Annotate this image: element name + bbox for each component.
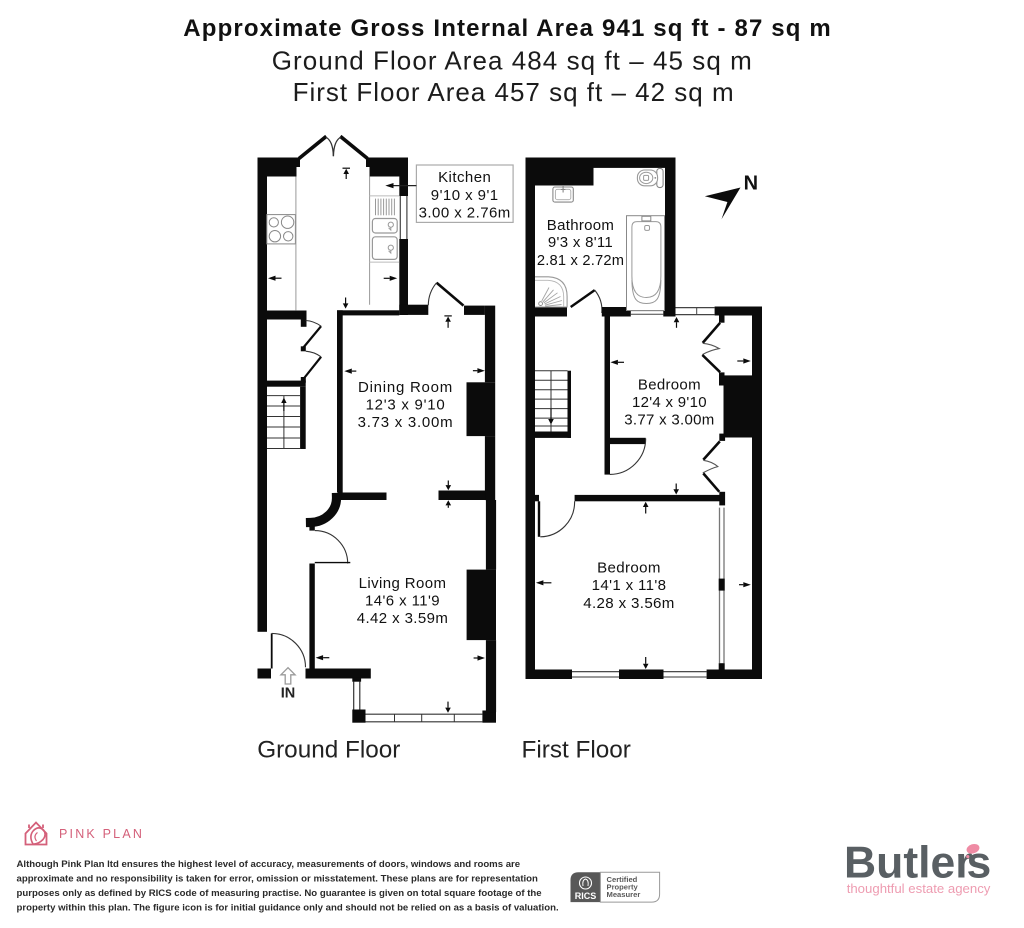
svg-text:First Floor Area 457 sq ft – 4: First Floor Area 457 sq ft – 42 sq m	[293, 77, 735, 107]
svg-text:Living Room: Living Room	[359, 575, 447, 592]
svg-text:N: N	[744, 172, 758, 194]
svg-text:4.42 x 3.59m: 4.42 x 3.59m	[357, 610, 449, 627]
svg-text:PINK PLAN: PINK PLAN	[59, 827, 144, 841]
svg-text:Kitchen: Kitchen	[438, 169, 491, 186]
svg-text:Bedroom: Bedroom	[597, 560, 661, 577]
svg-text:Ground Floor Area 484 sq ft –: Ground Floor Area 484 sq ft – 45 sq m	[272, 45, 753, 75]
svg-text:4.28 x 3.56m: 4.28 x 3.56m	[583, 595, 674, 612]
svg-text:purposes only as defined by RI: purposes only as defined by RICS code of…	[17, 888, 542, 899]
svg-text:thoughtful estate agency: thoughtful estate agency	[847, 881, 991, 896]
svg-text:approximate and no responsibil: approximate and no responsibility is tak…	[17, 873, 539, 884]
svg-text:RICS: RICS	[575, 891, 597, 901]
svg-text:14'1 x 11'8: 14'1 x 11'8	[592, 577, 667, 594]
svg-text:9'10 x 9'1: 9'10 x 9'1	[431, 187, 499, 204]
svg-text:12'3 x 9'10: 12'3 x 9'10	[366, 396, 446, 413]
svg-text:property within this plan. The: property within this plan. The figure ic…	[17, 902, 559, 913]
svg-text:Bedroom: Bedroom	[638, 377, 701, 394]
svg-text:Bathroom: Bathroom	[547, 217, 614, 234]
svg-text:14'6 x 11'9: 14'6 x 11'9	[365, 592, 440, 609]
svg-text:Measurer: Measurer	[607, 890, 641, 899]
svg-text:Ground Floor: Ground Floor	[257, 737, 400, 764]
svg-text:3.00 x 2.76m: 3.00 x 2.76m	[419, 205, 511, 222]
svg-text:3.73 x 3.00m: 3.73 x 3.00m	[358, 414, 454, 431]
svg-text:9'3 x 8'11: 9'3 x 8'11	[548, 234, 613, 251]
svg-text:3.77 x 3.00m: 3.77 x 3.00m	[624, 412, 714, 429]
svg-text:First Floor: First Floor	[522, 737, 631, 764]
svg-text:12'4 x 9'10: 12'4 x 9'10	[632, 394, 707, 411]
svg-text:2.81 x 2.72m: 2.81 x 2.72m	[537, 253, 624, 269]
svg-text:Dining Room: Dining Room	[358, 379, 453, 396]
svg-text:Although Pink Plan ltd ensures: Although Pink Plan ltd ensures the highe…	[17, 859, 521, 870]
svg-text:IN: IN	[281, 686, 296, 702]
svg-text:Approximate Gross Internal Are: Approximate Gross Internal Area 941 sq f…	[183, 15, 832, 42]
